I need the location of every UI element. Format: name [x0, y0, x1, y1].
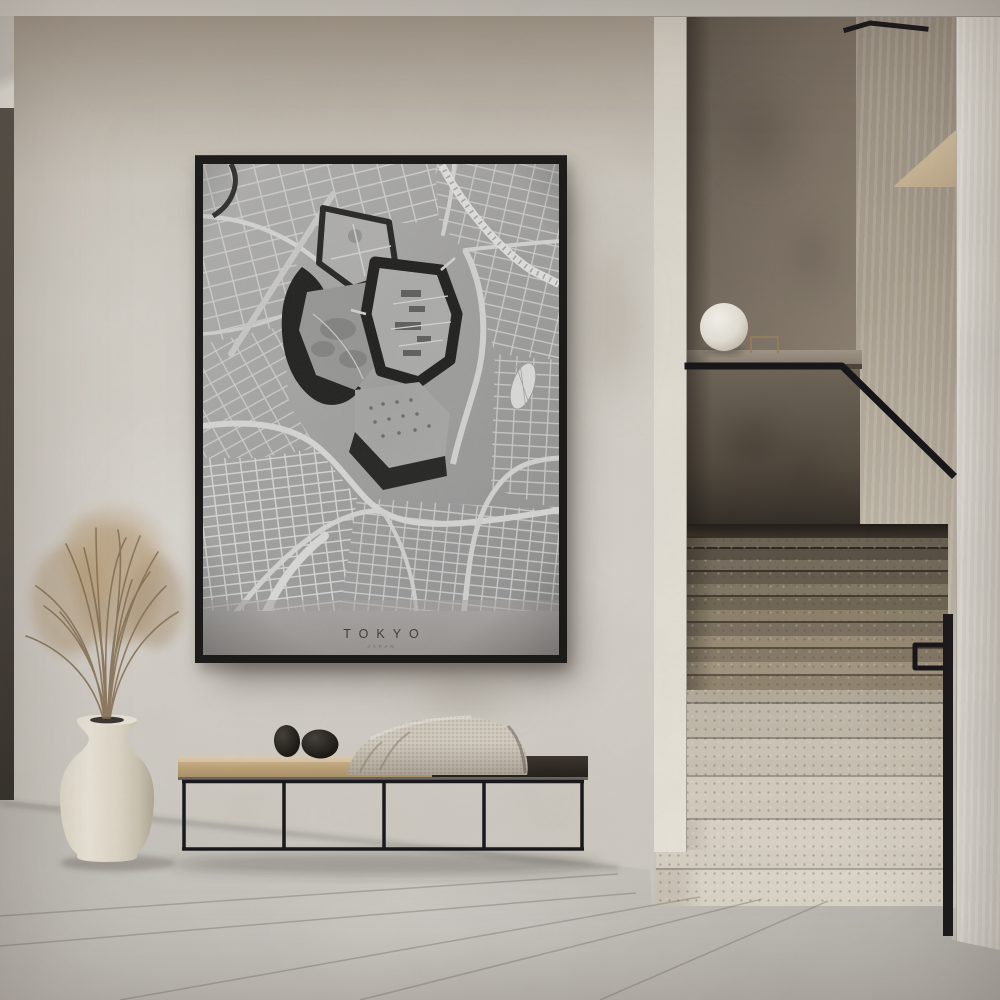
handrail-post	[943, 614, 953, 936]
interior-photo: TOKYO JAPAN	[0, 0, 1000, 1000]
bench-frame	[182, 780, 584, 850]
blanket	[347, 716, 528, 775]
lamp-stand	[750, 337, 779, 353]
handrail-main	[688, 366, 952, 474]
bench-underside-shadow	[178, 777, 588, 780]
furnishings	[0, 0, 1000, 1000]
handrail-bracket	[915, 645, 947, 668]
pebble-1	[272, 724, 301, 759]
dried-grass-plume	[32, 506, 183, 655]
table-lamp	[700, 303, 779, 355]
sphere-lamp	[700, 303, 748, 351]
bench-floor-shadow	[170, 853, 600, 875]
vase-body	[60, 720, 154, 862]
pebble-2	[301, 728, 340, 760]
handrail-upper-floor	[846, 23, 926, 30]
vase-with-grass	[26, 506, 183, 871]
floor-grout-lines	[0, 874, 828, 1000]
